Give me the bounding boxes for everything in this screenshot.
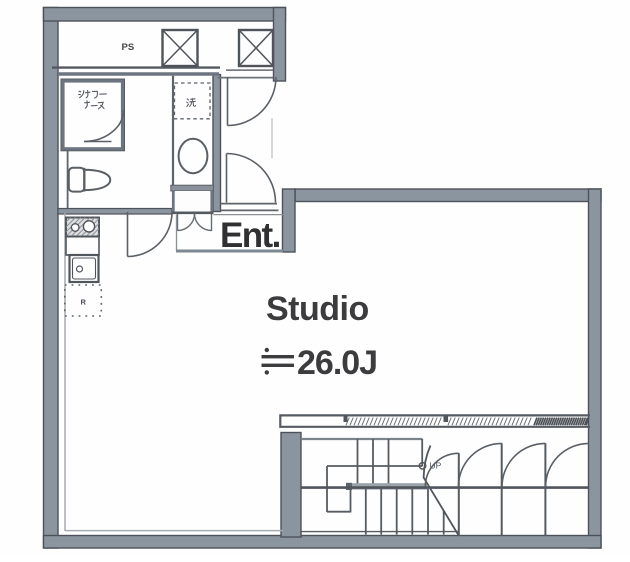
svg-text:Studio: Studio: [266, 290, 369, 328]
svg-text:Ent.: Ent.: [220, 216, 280, 255]
svg-text:PS: PS: [122, 42, 135, 53]
svg-text:26.0J: 26.0J: [297, 344, 377, 382]
svg-text:R: R: [81, 298, 87, 307]
